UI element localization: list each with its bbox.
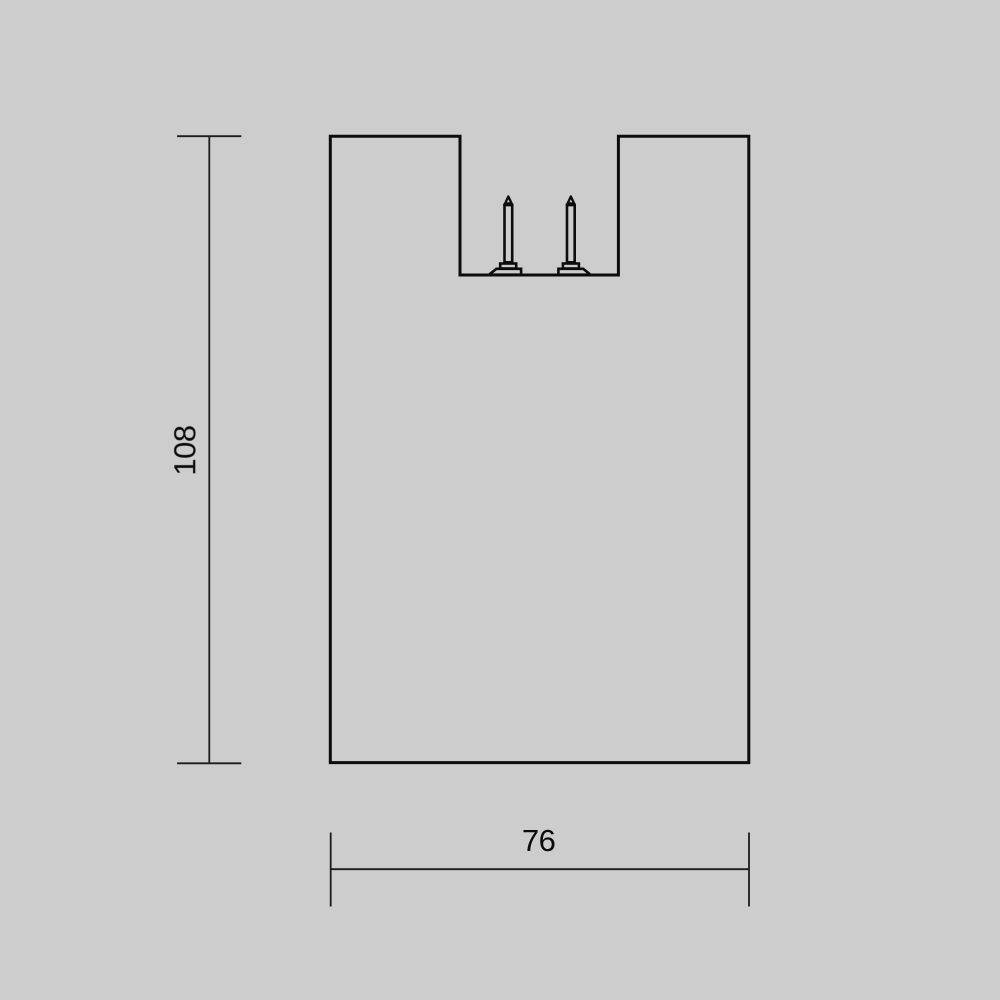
- svg-text:76: 76: [522, 823, 555, 858]
- svg-text:108: 108: [167, 425, 202, 475]
